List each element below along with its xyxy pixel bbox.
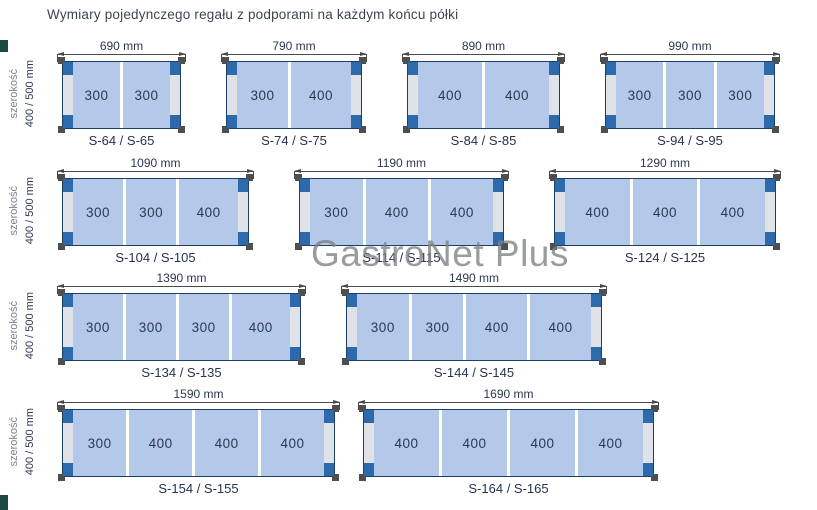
shelf-top-view: 400400 — [407, 61, 560, 129]
post-cap-icon — [643, 410, 653, 423]
shelf-top-view: 300300400400 — [346, 293, 602, 361]
support-post-right — [351, 62, 361, 128]
shelf-diagram: 1490 mm 300300400400 S-144 / S-1 — [346, 272, 602, 380]
post-cap-icon — [324, 410, 334, 423]
dimension-arrow-left-icon — [57, 284, 64, 288]
dimension-arrow-left-icon — [57, 400, 64, 404]
post-cap-icon — [351, 62, 361, 75]
shelf-segment: 400 — [507, 410, 575, 476]
diagram-row: szerokość 400 / 500 mm 1090 mm 300300400 — [0, 157, 776, 265]
dimension-line — [358, 402, 659, 403]
support-post-left — [300, 179, 310, 245]
segment-depth-label: 300 — [250, 88, 274, 103]
segment-depth-label: 400 — [530, 436, 554, 451]
segment-depth-label: 300 — [628, 88, 652, 103]
post-cap-icon — [555, 179, 565, 192]
length-dimension-label: 890 mm — [407, 40, 560, 52]
row-side-label: szerokość 400 / 500 mm — [0, 157, 62, 253]
segment-depth-label: 400 — [281, 436, 305, 451]
segment-depth-label: 400 — [215, 436, 239, 451]
shelf-segment: 300 — [409, 294, 464, 360]
dimension-arrow-left-icon — [294, 169, 301, 173]
segment-depth-label: 400 — [385, 205, 409, 220]
dimension-arrow-left-icon — [57, 169, 64, 173]
post-strip — [300, 192, 310, 232]
diagram-row: szerokość 400 / 500 mm 1390 mm 300300300… — [0, 272, 602, 380]
post-cap-icon — [764, 62, 774, 75]
post-cap-icon — [364, 463, 374, 476]
shelf-segments: 400400400400 — [374, 410, 643, 476]
dimension-line — [57, 402, 340, 403]
post-strip — [549, 75, 559, 115]
shelf-segment: 400 — [463, 294, 527, 360]
post-cap-icon — [238, 179, 248, 192]
width-axis-label: szerokość — [8, 69, 21, 119]
dimension-extension-right — [606, 286, 607, 294]
shelf-segments: 300300400400 — [357, 294, 591, 360]
catalog-page: Wymiary pojedynczego regału z podporami … — [0, 0, 817, 510]
segment-depth-label: 400 — [598, 436, 622, 451]
post-cap-icon — [63, 410, 73, 423]
model-label: S-144 / S-145 — [346, 365, 602, 380]
dimension-extension-right — [780, 171, 781, 179]
shelf-segment: 300 — [73, 410, 126, 476]
post-cap-icon — [606, 115, 616, 128]
post-cap-icon — [351, 115, 361, 128]
support-post-right — [324, 410, 334, 476]
shelf-top-view: 300400400 — [299, 178, 504, 246]
dimension-extension-right — [779, 54, 780, 62]
shelf-diagram: 890 mm 400400 S-84 / S-85 — [407, 40, 560, 148]
post-cap-icon — [764, 115, 774, 128]
shelf-segment: 300 — [714, 62, 764, 128]
dimension-line — [600, 54, 780, 55]
segment-depth-label: 400 — [585, 205, 609, 220]
shelf-segments: 300300300 — [616, 62, 764, 128]
shelf-segment: 300 — [357, 294, 409, 360]
row-side-label-inner: szerokość 400 / 500 mm — [8, 177, 37, 245]
post-cap-icon — [170, 62, 180, 75]
shelf-diagram: 1590 mm 300400400400 S-154 / S-1 — [62, 388, 335, 496]
post-cap-icon — [643, 463, 653, 476]
dimension-line — [402, 54, 565, 55]
segment-depth-label: 400 — [462, 436, 486, 451]
segment-depth-label: 400 — [309, 88, 333, 103]
shelf-segment: 300 — [73, 294, 123, 360]
model-label: S-114 / S-115 — [299, 250, 504, 265]
support-post-left — [227, 62, 237, 128]
shelf-segments: 300300 — [73, 62, 170, 128]
post-cap-icon — [765, 232, 775, 245]
support-post-left — [63, 179, 73, 245]
row-side-label: szerokość 400 / 500 mm — [0, 388, 62, 484]
dimension-extension-right — [185, 54, 186, 62]
dimension-extension-right — [366, 54, 367, 62]
segment-depth-label: 300 — [139, 205, 163, 220]
post-cap-icon — [493, 232, 503, 245]
support-post-right — [290, 294, 300, 360]
shelf-segments: 300400400400 — [73, 410, 324, 476]
post-cap-icon — [408, 62, 418, 75]
segment-depth-label: 400 — [438, 88, 462, 103]
shelf-segment: 300 — [310, 179, 363, 245]
segment-depth-label: 300 — [425, 320, 449, 335]
dimension-arrow-left-icon — [358, 400, 365, 404]
post-strip — [238, 192, 248, 232]
shelf-top-view: 400400400 — [554, 178, 776, 246]
dimension-extension-right — [339, 402, 340, 410]
length-dimension-label: 990 mm — [605, 40, 775, 52]
support-post-left — [347, 294, 357, 360]
post-cap-icon — [364, 410, 374, 423]
post-cap-icon — [493, 179, 503, 192]
dimension-line — [221, 54, 367, 55]
support-post-left — [555, 179, 565, 245]
post-cap-icon — [765, 179, 775, 192]
post-strip — [606, 75, 616, 115]
length-dimension-label: 1390 mm — [62, 272, 301, 284]
post-cap-icon — [324, 463, 334, 476]
post-cap-icon — [290, 294, 300, 307]
shelf-top-view: 300400400400 — [62, 409, 335, 477]
length-dimension-label: 690 mm — [62, 40, 181, 52]
dimension-arrow-left-icon — [600, 52, 607, 56]
shelf-segment: 400 — [229, 294, 290, 360]
shelf-segment: 400 — [630, 179, 698, 245]
dimension-arrow-left-icon — [341, 284, 348, 288]
model-label: S-104 / S-105 — [62, 250, 249, 265]
row-side-label: szerokość 400 / 500 mm — [0, 272, 62, 368]
shelf-segment: 300 — [663, 62, 713, 128]
shelf-diagram: 690 mm 300300 S-64 / S-65 — [62, 40, 181, 148]
shelf-segment: 400 — [565, 179, 630, 245]
support-post-right — [170, 62, 180, 128]
diagram-row: szerokość 400 / 500 mm 690 mm 300300 — [0, 40, 775, 148]
model-label: S-84 / S-85 — [407, 133, 560, 148]
support-post-right — [764, 62, 774, 128]
shelf-diagram: 990 mm 300300300 S-94 / S-95 — [605, 40, 775, 148]
shelf-segment: 400 — [126, 410, 192, 476]
model-label: S-64 / S-65 — [62, 133, 181, 148]
length-dimension-label: 1490 mm — [346, 272, 602, 284]
length-dimension-label: 1690 mm — [363, 388, 654, 400]
segment-depth-label: 400 — [450, 205, 474, 220]
shelf-segment: 400 — [575, 410, 643, 476]
support-post-left — [408, 62, 418, 128]
post-cap-icon — [63, 115, 73, 128]
width-value-label: 400 / 500 mm — [24, 177, 37, 244]
width-value-label: 400 / 500 mm — [24, 60, 37, 127]
shelf-segment: 400 — [482, 62, 549, 128]
segment-depth-label: 300 — [139, 320, 163, 335]
model-label: S-74 / S-75 — [226, 133, 362, 148]
dimension-extension-right — [564, 54, 565, 62]
diagram-grid: szerokość 400 / 500 mm 690 mm 300300 — [0, 0, 817, 510]
shelf-segments: 300300300400 — [73, 294, 290, 360]
post-cap-icon — [549, 62, 559, 75]
shelf-diagram: 1090 mm 300300400 S-104 / S-105 — [62, 157, 249, 265]
support-post-right — [238, 179, 248, 245]
segment-depth-label: 300 — [678, 88, 702, 103]
segment-depth-label: 300 — [84, 88, 108, 103]
width-axis-label: szerokość — [8, 417, 21, 467]
segment-depth-label: 400 — [485, 320, 509, 335]
support-post-left — [364, 410, 374, 476]
length-dimension-label: 790 mm — [226, 40, 362, 52]
post-strip — [63, 307, 73, 347]
shelf-top-view: 300300300 — [605, 61, 775, 129]
segment-depth-label: 400 — [721, 205, 745, 220]
dimension-arrow-left-icon — [221, 52, 228, 56]
post-cap-icon — [347, 347, 357, 360]
shelf-diagram: 1290 mm 400400400 S-124 / S-125 — [554, 157, 776, 265]
post-cap-icon — [549, 115, 559, 128]
shelf-segment: 300 — [616, 62, 663, 128]
model-label: S-134 / S-135 — [62, 365, 301, 380]
segment-depth-label: 300 — [88, 436, 112, 451]
dimension-extension-right — [253, 171, 254, 179]
dimension-extension-right — [508, 171, 509, 179]
shelf-segment: 300 — [73, 179, 123, 245]
segment-depth-label: 400 — [653, 205, 677, 220]
post-cap-icon — [591, 294, 601, 307]
shelf-diagram: 1690 mm 400400400400 S-164 / S-1 — [363, 388, 654, 496]
shelf-top-view: 300400 — [226, 61, 362, 129]
segment-depth-label: 300 — [371, 320, 395, 335]
diagram-row: szerokość 400 / 500 mm 1590 mm 300400400… — [0, 388, 654, 496]
model-label: S-94 / S-95 — [605, 133, 775, 148]
shelf-segments: 400400 — [418, 62, 549, 128]
width-value-label: 400 / 500 mm — [24, 292, 37, 359]
length-dimension-label: 1290 mm — [554, 157, 776, 169]
post-cap-icon — [227, 115, 237, 128]
shelf-diagram: 1190 mm 300400400 S-114 / S-115 — [299, 157, 504, 265]
dimension-arrow-left-icon — [57, 52, 64, 56]
row-side-label-inner: szerokość 400 / 500 mm — [8, 408, 37, 476]
support-post-right — [643, 410, 653, 476]
dimension-extension-right — [658, 402, 659, 410]
shelf-segment: 400 — [527, 294, 591, 360]
shelf-segment: 400 — [176, 179, 238, 245]
post-cap-icon — [63, 347, 73, 360]
post-cap-icon — [555, 232, 565, 245]
row-side-label-inner: szerokość 400 / 500 mm — [8, 292, 37, 360]
post-strip — [764, 75, 774, 115]
post-cap-icon — [227, 62, 237, 75]
support-post-right — [591, 294, 601, 360]
post-cap-icon — [63, 62, 73, 75]
shelf-segment: 400 — [192, 410, 258, 476]
shelf-top-view: 400400400400 — [363, 409, 654, 477]
post-cap-icon — [63, 179, 73, 192]
support-post-right — [549, 62, 559, 128]
dimension-line — [549, 171, 781, 172]
support-post-right — [765, 179, 775, 245]
row-side-label-inner: szerokość 400 / 500 mm — [8, 60, 37, 128]
length-dimension-label: 1590 mm — [62, 388, 335, 400]
post-strip — [324, 423, 334, 463]
post-cap-icon — [63, 232, 73, 245]
shelf-segments: 300400 — [237, 62, 351, 128]
shelf-segment: 400 — [288, 62, 351, 128]
support-post-right — [493, 179, 503, 245]
post-strip — [364, 423, 374, 463]
post-strip — [63, 75, 73, 115]
shelf-segment: 400 — [374, 410, 439, 476]
support-post-left — [63, 62, 73, 128]
post-cap-icon — [408, 115, 418, 128]
segment-depth-label: 400 — [549, 320, 573, 335]
shelf-segment: 400 — [418, 62, 482, 128]
post-cap-icon — [606, 62, 616, 75]
row-side-label: szerokość 400 / 500 mm — [0, 40, 62, 136]
segment-depth-label: 400 — [249, 320, 273, 335]
post-cap-icon — [591, 347, 601, 360]
shelf-segments: 400400400 — [565, 179, 765, 245]
post-cap-icon — [300, 232, 310, 245]
dimension-line — [57, 286, 306, 287]
model-label: S-124 / S-125 — [554, 250, 776, 265]
dimension-line — [57, 54, 186, 55]
shelf-segment: 300 — [73, 62, 120, 128]
width-value-label: 400 / 500 mm — [24, 408, 37, 475]
model-label: S-154 / S-155 — [62, 481, 335, 496]
segment-depth-label: 300 — [134, 88, 158, 103]
post-strip — [555, 192, 565, 232]
post-strip — [63, 192, 73, 232]
shelf-segment: 400 — [363, 179, 428, 245]
segment-depth-label: 400 — [394, 436, 418, 451]
shelf-segments: 300400400 — [310, 179, 493, 245]
segment-depth-label: 300 — [86, 205, 110, 220]
post-strip — [347, 307, 357, 347]
dimension-line — [294, 171, 509, 172]
shelf-segments: 300300400 — [73, 179, 238, 245]
shelf-diagram: 1390 mm 300300300400 S-134 / S-1 — [62, 272, 301, 380]
post-cap-icon — [63, 463, 73, 476]
shelf-segment: 300 — [237, 62, 288, 128]
length-dimension-label: 1090 mm — [62, 157, 249, 169]
length-dimension-label: 1190 mm — [299, 157, 504, 169]
segment-depth-label: 400 — [197, 205, 221, 220]
segment-depth-label: 300 — [728, 88, 752, 103]
shelf-segment: 400 — [439, 410, 507, 476]
post-strip — [227, 75, 237, 115]
width-axis-label: szerokość — [8, 186, 21, 236]
shelf-segment: 300 — [176, 294, 229, 360]
segment-depth-label: 400 — [505, 88, 529, 103]
shelf-segment: 300 — [120, 62, 170, 128]
post-strip — [408, 75, 418, 115]
post-cap-icon — [238, 232, 248, 245]
post-strip — [643, 423, 653, 463]
shelf-top-view: 300300 — [62, 61, 181, 129]
post-strip — [351, 75, 361, 115]
post-strip — [765, 192, 775, 232]
segment-depth-label: 400 — [149, 436, 173, 451]
support-post-left — [606, 62, 616, 128]
dimension-extension-right — [305, 286, 306, 294]
model-label: S-164 / S-165 — [363, 481, 654, 496]
post-strip — [63, 423, 73, 463]
shelf-segment: 300 — [123, 294, 176, 360]
segment-depth-label: 300 — [86, 320, 110, 335]
post-strip — [591, 307, 601, 347]
post-cap-icon — [170, 115, 180, 128]
post-cap-icon — [290, 347, 300, 360]
dimension-arrow-left-icon — [549, 169, 556, 173]
post-strip — [493, 192, 503, 232]
post-strip — [170, 75, 180, 115]
shelf-segment: 400 — [258, 410, 324, 476]
shelf-segment: 300 — [123, 179, 176, 245]
dimension-arrow-left-icon — [402, 52, 409, 56]
post-cap-icon — [300, 179, 310, 192]
shelf-segment: 400 — [428, 179, 493, 245]
post-strip — [290, 307, 300, 347]
support-post-left — [63, 410, 73, 476]
shelf-diagram: 790 mm 300400 S-74 / S-75 — [226, 40, 362, 148]
dimension-line — [57, 171, 254, 172]
shelf-top-view: 300300400 — [62, 178, 249, 246]
support-post-left — [63, 294, 73, 360]
shelf-segment: 400 — [697, 179, 765, 245]
post-cap-icon — [347, 294, 357, 307]
width-axis-label: szerokość — [8, 301, 21, 351]
shelf-top-view: 300300300400 — [62, 293, 301, 361]
segment-depth-label: 300 — [192, 320, 216, 335]
segment-depth-label: 300 — [324, 205, 348, 220]
post-cap-icon — [63, 294, 73, 307]
dimension-line — [341, 286, 607, 287]
